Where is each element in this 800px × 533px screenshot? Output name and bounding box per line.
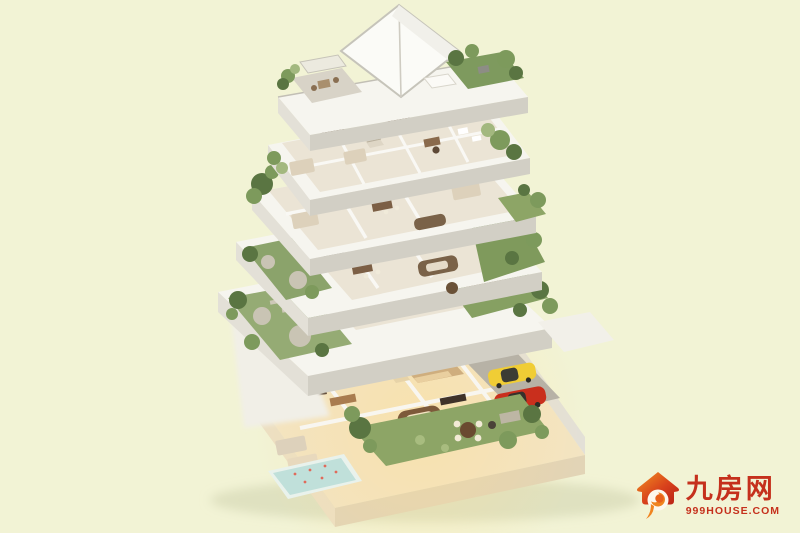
brand-url: 999HOUSE.COM bbox=[686, 506, 780, 517]
roof-planters bbox=[277, 64, 300, 90]
round-chair bbox=[446, 282, 458, 294]
villa-exploded-render bbox=[0, 0, 800, 533]
page: 九房网 999HOUSE.COM bbox=[0, 0, 800, 533]
watermark: 九房网 999HOUSE.COM bbox=[636, 471, 780, 521]
brand-name-cn: 九房网 bbox=[686, 476, 780, 503]
chair bbox=[432, 146, 439, 153]
house-swirl-logo-icon bbox=[636, 471, 680, 521]
